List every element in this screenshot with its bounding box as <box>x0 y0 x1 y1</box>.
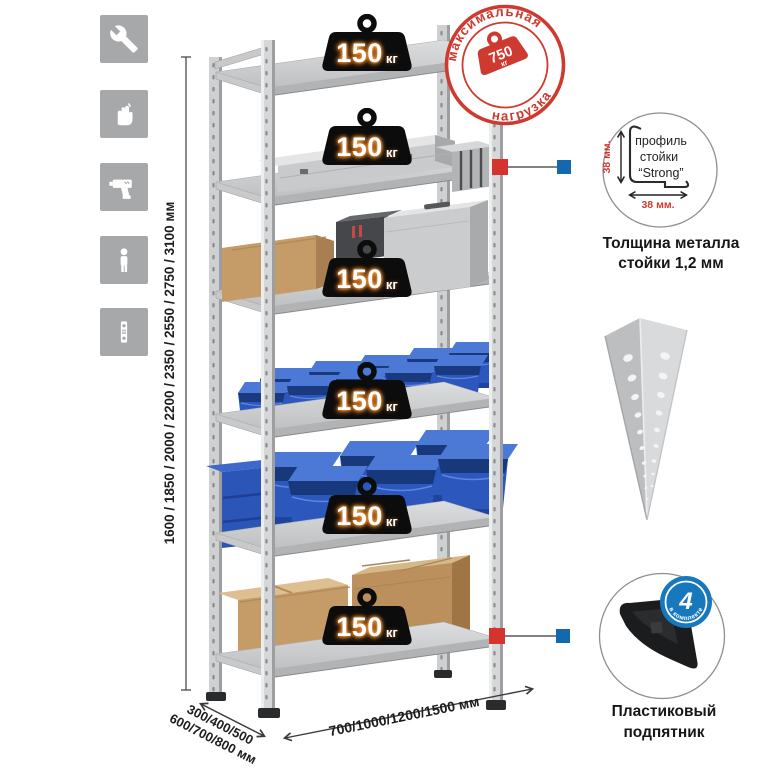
badge-count: 4 <box>678 588 692 615</box>
foot-back-left <box>206 692 226 701</box>
foot-front-left <box>258 708 280 718</box>
shelf-load-badge-6: 150кг <box>322 588 412 650</box>
shelf-load-value: 150 <box>336 132 383 163</box>
height-dimension-line <box>181 57 191 690</box>
shelf-load-value: 150 <box>336 612 383 643</box>
foot-callout-connector <box>489 628 570 644</box>
shelf-load-unit: кг <box>386 514 398 529</box>
shelf-load-badge-1: 150кг <box>322 14 412 76</box>
shelf-load-unit: кг <box>386 399 398 414</box>
shelf-load-badge-4: 150кг <box>322 362 412 424</box>
shelf-load-unit: кг <box>386 145 398 160</box>
max-load-stamp: максимальная нагрузка 750 кг <box>440 0 570 130</box>
foot-back-right <box>434 670 452 678</box>
shelf-load-badge-5: 150кг <box>322 477 412 539</box>
profile-dim-vertical: 38 мм. <box>601 140 613 173</box>
profile-detail-circle: 38 мм. 38 мм. профиль стойки “Strong” <box>585 105 745 265</box>
shelf-load-value: 150 <box>336 386 383 417</box>
height-dimension-text: 1600 / 1850 / 2000 / 2200 / 2350 / 2550 … <box>160 53 180 693</box>
shelf-load-value: 150 <box>336 264 383 295</box>
shelf-load-badge-3: 150кг <box>322 240 412 302</box>
profile-label-1: профиль <box>635 134 687 148</box>
profile-callout-connector <box>492 159 571 175</box>
shelf-load-unit: кг <box>386 51 398 66</box>
shelf-load-unit: кг <box>386 625 398 640</box>
shelf-load-badge-2: 150кг <box>322 108 412 170</box>
front-left-post <box>261 40 275 713</box>
profile-label-2: стойки <box>640 150 678 164</box>
back-left-post <box>209 57 222 697</box>
profile-label-3: “Strong” <box>638 166 683 180</box>
shelf-load-value: 150 <box>336 501 383 532</box>
shelf-load-value: 150 <box>336 38 383 69</box>
shelf-load-unit: кг <box>386 277 398 292</box>
profile-dim-horizontal: 38 мм. <box>641 199 674 211</box>
metal-corner-post-image <box>595 310 707 528</box>
included-count-badge: 4 в комплекте <box>659 575 713 629</box>
